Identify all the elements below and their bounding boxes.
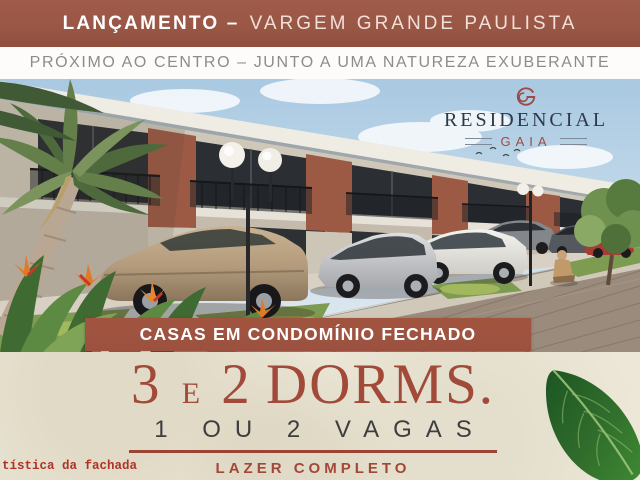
headline-word: DORMS. [266, 353, 495, 416]
bottom-section: 3 E 2 DORMS. 1 OU 2 VAGAS LAZER COMPLETO… [0, 352, 640, 480]
residencial-gaia-logo: RESIDENCIAL GAIA [437, 86, 615, 148]
condominio-ribbon: CASAS EM CONDOMÍNIO FECHADO [85, 318, 531, 351]
leaf-decoration-icon [530, 354, 640, 480]
gaia-monogram-icon [515, 86, 537, 108]
headline-num2: 2 [221, 353, 251, 416]
logo-subname: GAIA [500, 135, 551, 148]
sub-banner: PRÓXIMO AO CENTRO – JUNTO A UMA NATUREZA… [0, 47, 640, 79]
sub-banner-text: PRÓXIMO AO CENTRO – JUNTO A UMA NATUREZA… [30, 54, 611, 72]
lamp-pole-front [246, 197, 250, 323]
logo-name: RESIDENCIAL [437, 110, 615, 130]
headline-conjunction: E [176, 377, 206, 410]
launch-banner: LANÇAMENTO – VARGEM GRANDE PAULISTA [0, 0, 640, 47]
ribbon-text: CASAS EM CONDOMÍNIO FECHADO [140, 324, 477, 345]
headline-num1: 3 [131, 353, 161, 416]
location-label: VARGEM GRANDE PAULISTA [250, 13, 578, 35]
launch-label: LANÇAMENTO – [63, 13, 240, 35]
divider-rule [129, 450, 497, 453]
vagas-subheadline: 1 OU 2 VAGAS [0, 416, 626, 444]
logo-right-lines [560, 138, 587, 145]
logo-left-lines [465, 138, 492, 145]
real-estate-poster: LANÇAMENTO – VARGEM GRANDE PAULISTA PRÓX… [0, 0, 640, 480]
facade-disclaimer: tística da fachada [2, 459, 137, 473]
